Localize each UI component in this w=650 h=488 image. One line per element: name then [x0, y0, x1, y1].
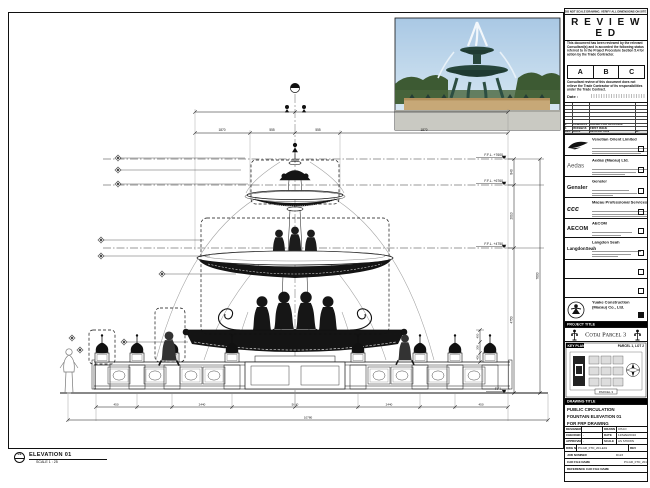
fountain-photo [395, 18, 560, 130]
consultant-box-empty-2 [565, 279, 647, 298]
ref-label: REFERENCE CAD FILE NAME [567, 468, 609, 471]
checked-label: CHECKED [566, 434, 581, 437]
grid-bubble [290, 83, 299, 92]
job-label: JOB NUMBER [567, 454, 587, 457]
level-label: F.F.L. +4750 [484, 242, 503, 246]
key-plan-parcel-label: PARCEL 1, LOT 2 [618, 344, 644, 348]
consultant-box-venetian: Venetian Orient Limited [565, 135, 647, 156]
gensler-logo: Gensler [567, 184, 587, 190]
checkbox-icon [638, 269, 644, 275]
drawing-title-line: PUBLIC CIRCULATION [567, 407, 644, 413]
venetian-logo-icon [567, 136, 592, 154]
aedas-logo: Aedas [567, 163, 584, 170]
dim-text: 1870 [420, 128, 427, 132]
drawn-label: DRAWN [604, 428, 615, 431]
dim-text: 555 [315, 128, 321, 132]
consultant-name: Venetian Orient Limited [592, 137, 647, 142]
compass-icon [627, 364, 640, 377]
sheet-note-text: DO NOT SCALE DRAWING. VERIFY ALL DIMENSI… [565, 10, 647, 13]
status-a: A [568, 66, 594, 78]
dim-text: 555 [269, 128, 275, 132]
cad-label: CAD FILE NAME [567, 461, 590, 464]
stamp-paragraph-2: Consultant review of this document does … [567, 80, 644, 92]
approved-label: APPROVED [566, 440, 582, 443]
drawing-title-block: PUBLIC CIRCULATION FOUNTAIN ELEVATION 01… [565, 405, 647, 427]
scale-label: SCALE [604, 440, 614, 443]
key-plan: KEY PLAN PARCEL 1, LOT 2 PAR [565, 342, 647, 399]
designed-label: DESIGNED [566, 428, 581, 431]
consultant-box-aecom: AECOM AECOM [565, 219, 647, 238]
date-label: Date : [567, 94, 578, 99]
contractor-box: Yuake Construction (Macau) Co., Ltd. [565, 298, 647, 322]
consultant-name: Aedas (Macau) Ltd. [592, 158, 647, 163]
reviewed-title: R E V I E W E D [565, 16, 647, 41]
dim-text: 450 [475, 333, 479, 338]
approved-value: - [583, 440, 584, 443]
consultant-name: Macau Professional Services Ltd. [592, 200, 647, 205]
dim-text: 450 [113, 402, 118, 406]
consultant-name: Langdon Seah [592, 240, 647, 245]
status-c: C [619, 66, 644, 78]
lamp-icon [571, 329, 578, 341]
job-number-row: JOB NUMBER D123 [565, 452, 647, 459]
consultant-box-empty-1 [565, 260, 647, 279]
date-fill-line [591, 94, 645, 98]
bottom-dimension-text: 450 2440 5000 2440 450 10780 [113, 402, 483, 419]
consultant-box-macau-professional: ccc Macau Professional Services Ltd. [565, 198, 647, 219]
top-dimensions [193, 109, 509, 393]
consultant-name: Gensler [592, 179, 645, 184]
key-plan-label: KEY PLAN [568, 344, 586, 348]
drawing-title-line: FOR FRP DRAWING [567, 421, 644, 427]
cad-value: P3-GR_FTD_201-E01.dwg [624, 461, 647, 464]
consultant-name: AECOM [592, 221, 645, 226]
right-dimension-text: 840 2010 4750 7600 450 300 400 [475, 169, 539, 360]
checkbox-icon [638, 146, 644, 152]
date-value: 12/MAR/2016 [618, 434, 636, 437]
dim-text: 400 [475, 355, 479, 360]
dim-text: 1870 [218, 128, 225, 132]
job-value: D123 [616, 454, 623, 457]
revision-header-row: REV DATE DESCRIPTION BY [565, 131, 647, 134]
pool-wall [60, 360, 548, 393]
aecom-logo: AECOM [567, 225, 588, 231]
dim-text: 450 [478, 402, 483, 406]
title-block: DO NOT SCALE DRAWING. VERIFY ALL DIMENSI… [564, 8, 648, 482]
level-label: F.F.L. +7600 [484, 153, 503, 157]
project-title-text: Cotai Parcel 3 [585, 331, 626, 338]
project-title-label: PROJECT TITLE [567, 322, 595, 326]
dwg-number-row: DWG NO. P3-GR_FTD_201-E01 REV B [565, 445, 647, 452]
checkbox-icon [638, 188, 644, 194]
dim-text: 10780 [304, 415, 313, 419]
consultant-box-langdon-seah: LangdonSeah Langdon Seah [565, 238, 647, 260]
checkbox-icon [638, 209, 644, 215]
drawing-sheet: F.F.L. +7600 F.F.L. +6760 F.F.L. +4750 F… [0, 0, 650, 488]
contractor-emblem-icon [567, 299, 592, 320]
scale-figure [60, 349, 78, 393]
checkbox-icon [638, 288, 644, 294]
dwg-number: P3-GR_FTD_201-E01 [578, 447, 607, 450]
langdon-seah-logo: LangdonSeah [567, 246, 596, 251]
status-b: B [594, 66, 620, 78]
contractor-name: Yuake Construction (Macau) Co., Ltd. [592, 300, 645, 310]
dim-text: 4750 [509, 316, 513, 323]
consultant-box-aedas: Aedas Aedas (Macau) Ltd. [565, 156, 647, 177]
dim-text: 2440 [386, 402, 393, 406]
drawing-title-line: FOUNTAIN ELEVATION 01 [567, 414, 644, 420]
stamp-date-row: Date : [567, 92, 645, 100]
dim-text: 300 [475, 345, 479, 350]
rev-label: REV [630, 447, 636, 450]
reviewed-stamp: R E V I E W E D This document has been r… [565, 15, 647, 103]
status-row: A B C [567, 65, 645, 79]
cad-file-row: CAD FILE NAME P3-GR_FTD_201-E01.dwg [565, 459, 647, 466]
dim-text: 840 [509, 169, 513, 175]
stamp-paragraph-1: This document has been reviewed by the r… [567, 41, 644, 56]
checked-value: - [583, 434, 584, 437]
project-title-row: Cotai Parcel 3 [565, 328, 647, 342]
drawn-value: CHAO [618, 428, 626, 431]
reference-cad-row: REFERENCE CAD FILE NAME [565, 466, 647, 473]
dim-text: 7600 [535, 272, 539, 279]
title-block-filler [565, 473, 647, 481]
level-label: F.F.L. +6760 [484, 179, 503, 183]
drawing-title-label: DRAWING TITLE [567, 399, 595, 403]
checkbox-icon [638, 250, 644, 256]
elevation-title: ELEVATION 01 [29, 451, 72, 457]
checkbox-icon [638, 167, 644, 173]
checkbox-icon [638, 228, 644, 234]
key-plan-caption: PARCEL 3 [599, 390, 614, 394]
checkbox-icon [638, 312, 644, 318]
dim-text: 2440 [199, 402, 206, 406]
scale-value: AS SHOWN [618, 440, 634, 443]
consultant-box-gensler: Gensler Gensler [565, 177, 647, 198]
fountain-elevation-drawing: F.F.L. +7600 F.F.L. +6760 F.F.L. +4750 F… [8, 12, 564, 449]
dim-text: 5000 [292, 402, 299, 406]
date-label: DATE [604, 434, 612, 437]
dwg-label: DWG NO. [566, 447, 577, 450]
elevation-callout: 01 ELEVATION 01 SCALE 1 : 25 [14, 451, 164, 469]
lamp-icon [634, 329, 641, 341]
ccc-logo: ccc [567, 204, 579, 212]
revision-table: 2 12/MAR/16 ISSUED FOR APPROVAL 1 05/FEB… [565, 103, 647, 135]
elevation-number: 01 [17, 452, 21, 456]
dim-text: 2010 [509, 212, 513, 219]
elevation-scale: SCALE 1 : 25 [36, 460, 58, 464]
signature-table: DESIGNED DRAWN CHAO CHECKED - DATE 12/MA… [565, 427, 647, 445]
detail-bubble-icon: 01 [14, 452, 25, 463]
